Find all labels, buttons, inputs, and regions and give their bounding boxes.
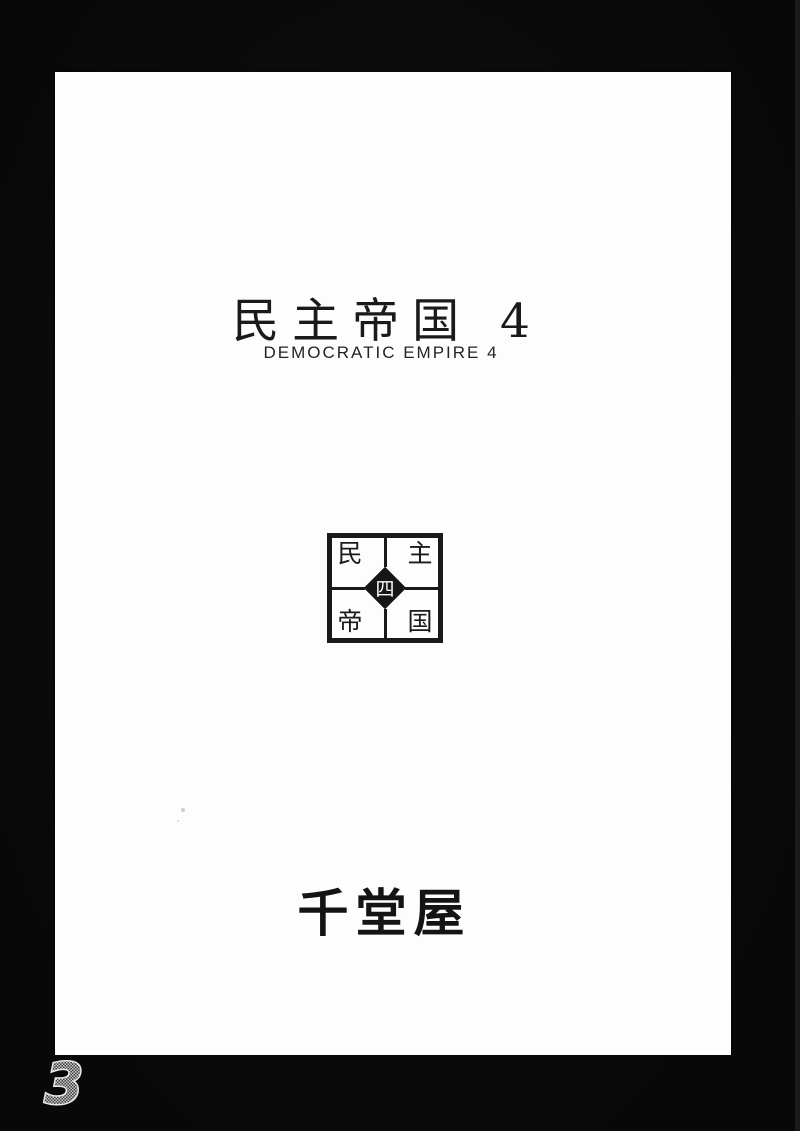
logo-kanji-bottom-right: 国	[405, 607, 435, 637]
logo-kanji-bottom-left: 帝	[335, 607, 365, 637]
logo-kanji-top-right: 主	[405, 539, 435, 569]
logo-divider-right	[405, 587, 438, 590]
scan-edge-highlight	[795, 0, 800, 1131]
logo-divider-bottom	[384, 609, 387, 638]
doujin-title: 民主帝国 4	[55, 282, 707, 351]
page-number: 3	[45, 1053, 84, 1115]
logo-divider-top	[384, 538, 387, 567]
paper-page: 民主帝国 4 DEMOCRATIC EMPIRE 4 民 主 帝 国 四 千堂屋	[55, 72, 731, 1055]
doujin-subtitle: DEMOCRATIC EMPIRE 4	[55, 343, 707, 363]
logo-center-kanji: 四	[375, 575, 394, 602]
scan-speck	[181, 808, 185, 812]
publisher-logo: 民 主 帝 国 四	[327, 533, 443, 643]
logo-kanji-top-left: 民	[335, 539, 365, 569]
scan-background: 民主帝国 4 DEMOCRATIC EMPIRE 4 民 主 帝 国 四 千堂屋…	[0, 0, 800, 1131]
logo-divider-left	[332, 587, 365, 590]
publisher-name: 千堂屋	[55, 872, 707, 946]
page-number-graphic: 3	[24, 1053, 100, 1115]
